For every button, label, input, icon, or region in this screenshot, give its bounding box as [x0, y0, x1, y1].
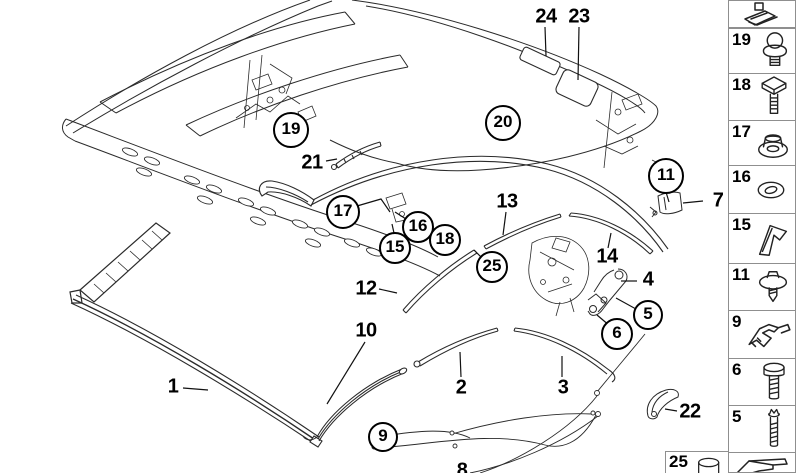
callout-5: 5 — [633, 300, 663, 330]
legend-number: 17 — [732, 122, 751, 142]
legend-cell-11: 11 — [728, 263, 796, 311]
legend-cell-16: 16 — [728, 165, 796, 214]
washer-head-screw-icon — [752, 266, 794, 308]
callout-15: 15 — [379, 232, 411, 264]
legend-cell-5: 5 — [728, 405, 796, 453]
legend-number: 9 — [732, 312, 741, 332]
legend-cell-17: 17 — [728, 120, 796, 166]
part-4-bracket-arm — [588, 269, 627, 315]
part-3-strip — [514, 328, 615, 382]
part-8-cables — [372, 334, 645, 473]
legend-cell-roof-clip — [728, 0, 796, 28]
callout-10: 10 — [355, 320, 376, 343]
callout-20: 20 — [485, 105, 521, 141]
callout-3: 3 — [558, 377, 569, 400]
part-7-bracket — [650, 192, 682, 217]
clamp-plate-icon — [752, 218, 794, 260]
part-21-strip — [332, 142, 382, 170]
legend-cell-9: 9 — [728, 310, 796, 359]
callout-18: 18 — [429, 224, 461, 256]
latch-mechanism-center — [529, 236, 589, 316]
callout-22: 22 — [679, 401, 700, 424]
callout-1: 1 — [168, 376, 179, 399]
flange-nut-icon — [752, 124, 794, 162]
hex-bolt-icon — [754, 360, 794, 404]
callout-2: 2 — [456, 377, 467, 400]
retainer-bracket-icon — [744, 316, 794, 354]
roof-clip-icon — [737, 1, 781, 28]
callout-21: 21 — [301, 152, 322, 175]
z-clip-icon — [732, 455, 790, 473]
callout-13: 13 — [496, 191, 517, 214]
washer-icon — [751, 175, 791, 205]
callout-7: 7 — [713, 190, 724, 213]
legend-number: 16 — [732, 167, 751, 187]
callout-25: 25 — [476, 251, 508, 283]
legend-number: 5 — [732, 407, 741, 427]
callout-11: 11 — [648, 158, 684, 194]
legend-cell-19: 19 — [728, 28, 796, 74]
part-23-pad — [554, 68, 599, 108]
legend-number: 11 — [732, 265, 750, 285]
part-22-cap — [647, 389, 678, 418]
legend-cell-6: 6 — [728, 358, 796, 406]
legend-grease-box: 25 — [665, 451, 729, 473]
part-24-pad — [519, 46, 561, 76]
legend-number: 6 — [732, 360, 741, 380]
part-2-strip — [414, 328, 498, 367]
legend-number: 19 — [732, 30, 751, 50]
legend-number: 15 — [732, 215, 751, 235]
callout-9: 9 — [368, 422, 398, 452]
legend-cell-z-clip — [728, 452, 796, 473]
ball-stud-icon — [752, 30, 794, 72]
part-1-seal — [70, 223, 322, 447]
callout-4: 4 — [643, 269, 654, 292]
callout-23: 23 — [568, 6, 589, 29]
part-12-strip — [403, 250, 477, 313]
grease-tube-icon — [687, 455, 727, 473]
threaded-stud-icon — [754, 406, 794, 452]
callout-17: 17 — [326, 195, 360, 229]
callout-6: 6 — [601, 318, 633, 350]
legend-cell-15: 15 — [728, 213, 796, 264]
parts-diagram-canvas: 2423192120117171316181525141245610123922… — [0, 0, 799, 473]
legend-number: 18 — [732, 75, 751, 95]
callout-14: 14 — [596, 246, 617, 269]
legend-number: 25 — [669, 452, 688, 472]
callout-12: 12 — [355, 278, 376, 301]
callout-8: 8 — [457, 460, 468, 473]
callout-24: 24 — [535, 6, 556, 29]
legend-cell-18: 18 — [728, 73, 796, 121]
square-head-bolt-icon — [754, 75, 794, 119]
part-13-strip — [484, 214, 561, 249]
callout-19: 19 — [273, 112, 309, 148]
